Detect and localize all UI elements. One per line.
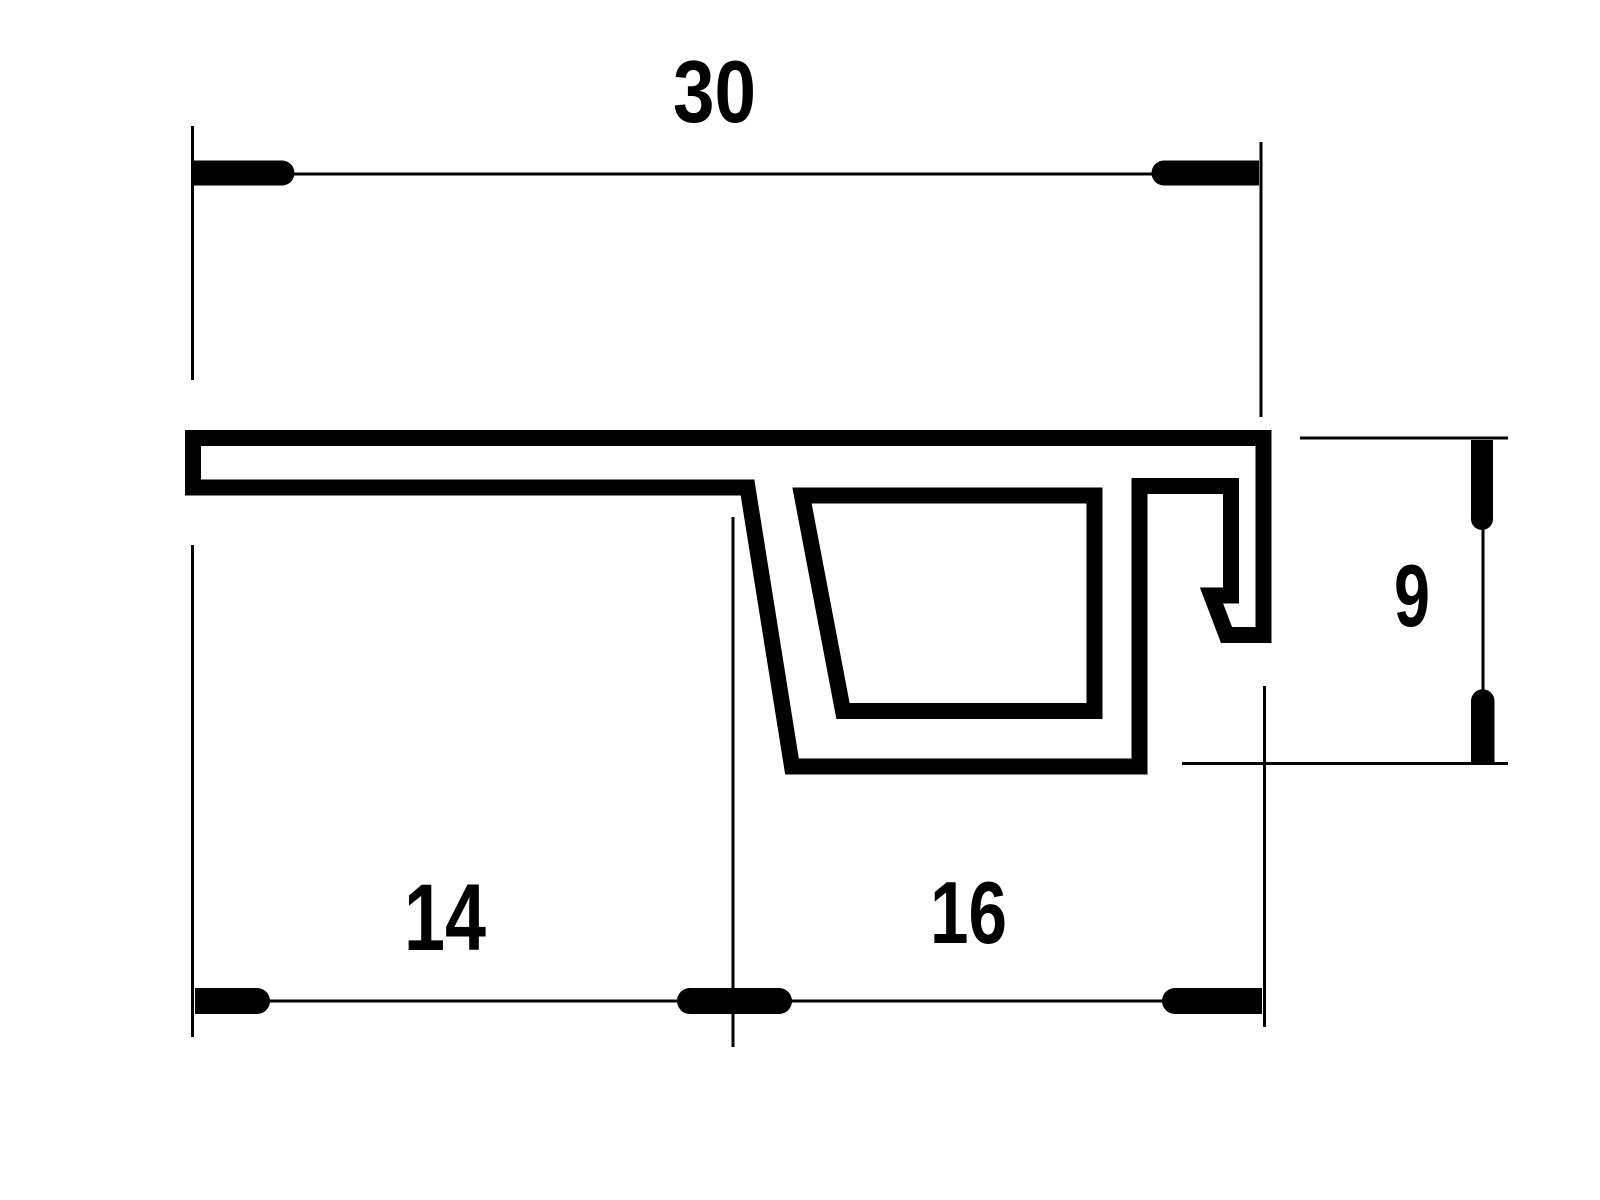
svg-text:14: 14: [404, 865, 486, 971]
svg-text:16: 16: [930, 863, 1007, 962]
svg-text:9: 9: [1394, 546, 1430, 645]
svg-text:30: 30: [673, 42, 756, 141]
